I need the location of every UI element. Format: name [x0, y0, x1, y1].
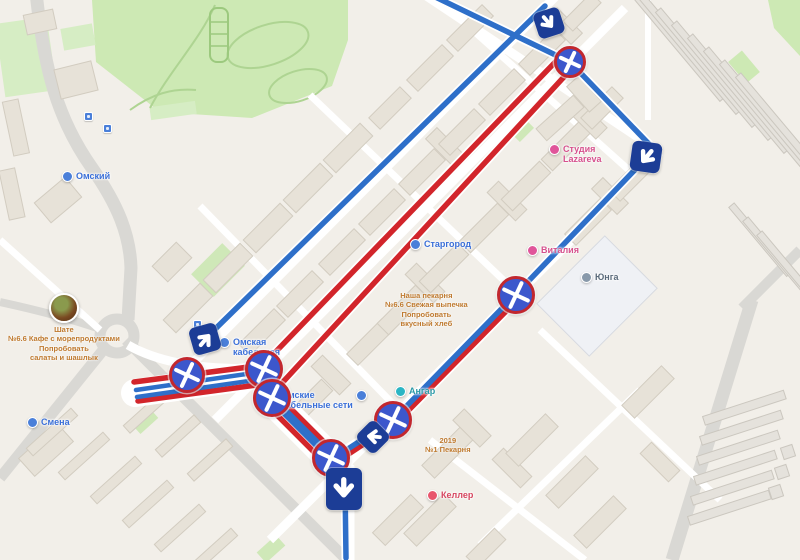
- basemap: [0, 0, 800, 560]
- ad-text: Наша пекарня№6.6 Свежая выпечкаПопробова…: [385, 291, 468, 329]
- poi-label: Ангар: [409, 386, 435, 396]
- direction-arrow-marker[interactable]: [326, 468, 362, 510]
- bus-stop-icon[interactable]: [84, 112, 93, 121]
- poi-label: Келлер: [441, 490, 473, 500]
- poi-icon: [410, 239, 421, 250]
- ad-text: 2019№1 Пекарня: [425, 436, 471, 455]
- poi[interactable]: Смена: [27, 417, 70, 428]
- arrow-icon: [189, 323, 221, 355]
- road-closure-marker[interactable]: [497, 276, 535, 314]
- poi-icon: [62, 171, 73, 182]
- road-closure-marker[interactable]: [554, 46, 586, 78]
- ad-label[interactable]: 2019№1 Пекарня: [425, 436, 471, 455]
- poi[interactable]: Ангар: [395, 386, 435, 397]
- poi-icon: [356, 390, 367, 401]
- poi[interactable]: СтудияLazareva: [549, 144, 602, 164]
- poi-label: СтудияLazareva: [563, 144, 602, 164]
- poi-icon: [395, 386, 406, 397]
- poi[interactable]: Юнга: [581, 272, 618, 283]
- arrow-icon: [361, 425, 384, 448]
- poi[interactable]: Виталия: [527, 245, 579, 256]
- poi-icon: [27, 417, 38, 428]
- poi-icon: [549, 144, 560, 155]
- bus-stop-icon[interactable]: [103, 124, 112, 133]
- map-canvas[interactable]: Омский Старгород СтудияLazareva Виталия …: [0, 0, 800, 560]
- arrow-icon: [629, 140, 664, 175]
- poi-icon: [581, 272, 592, 283]
- ad-text: Шате№6.6 Кафе с морепродуктамиПопробоват…: [8, 325, 120, 363]
- road-closure-marker[interactable]: [169, 357, 205, 393]
- poi-label: Виталия: [541, 245, 579, 255]
- ad-photo-icon: [49, 293, 79, 323]
- direction-arrow-marker[interactable]: [629, 140, 663, 174]
- poi-icon: [527, 245, 538, 256]
- ad-label[interactable]: Шате№6.6 Кафе с морепродуктамиПопробоват…: [8, 293, 120, 363]
- poi-icon: [427, 490, 438, 501]
- poi[interactable]: Келлер: [427, 490, 473, 501]
- poi[interactable]: Старгород: [410, 239, 471, 250]
- poi[interactable]: Омскиекабельные сети: [281, 390, 367, 410]
- arrow-icon: [329, 472, 359, 506]
- poi-label: Омский: [76, 171, 110, 181]
- poi-label: Старгород: [424, 239, 471, 249]
- poi[interactable]: Омский: [62, 171, 110, 182]
- poi-label: Смена: [41, 417, 70, 427]
- ad-label[interactable]: Наша пекарня№6.6 Свежая выпечкаПопробова…: [385, 291, 468, 329]
- road-closure-marker[interactable]: [253, 379, 291, 417]
- poi-label: Юнга: [595, 272, 618, 282]
